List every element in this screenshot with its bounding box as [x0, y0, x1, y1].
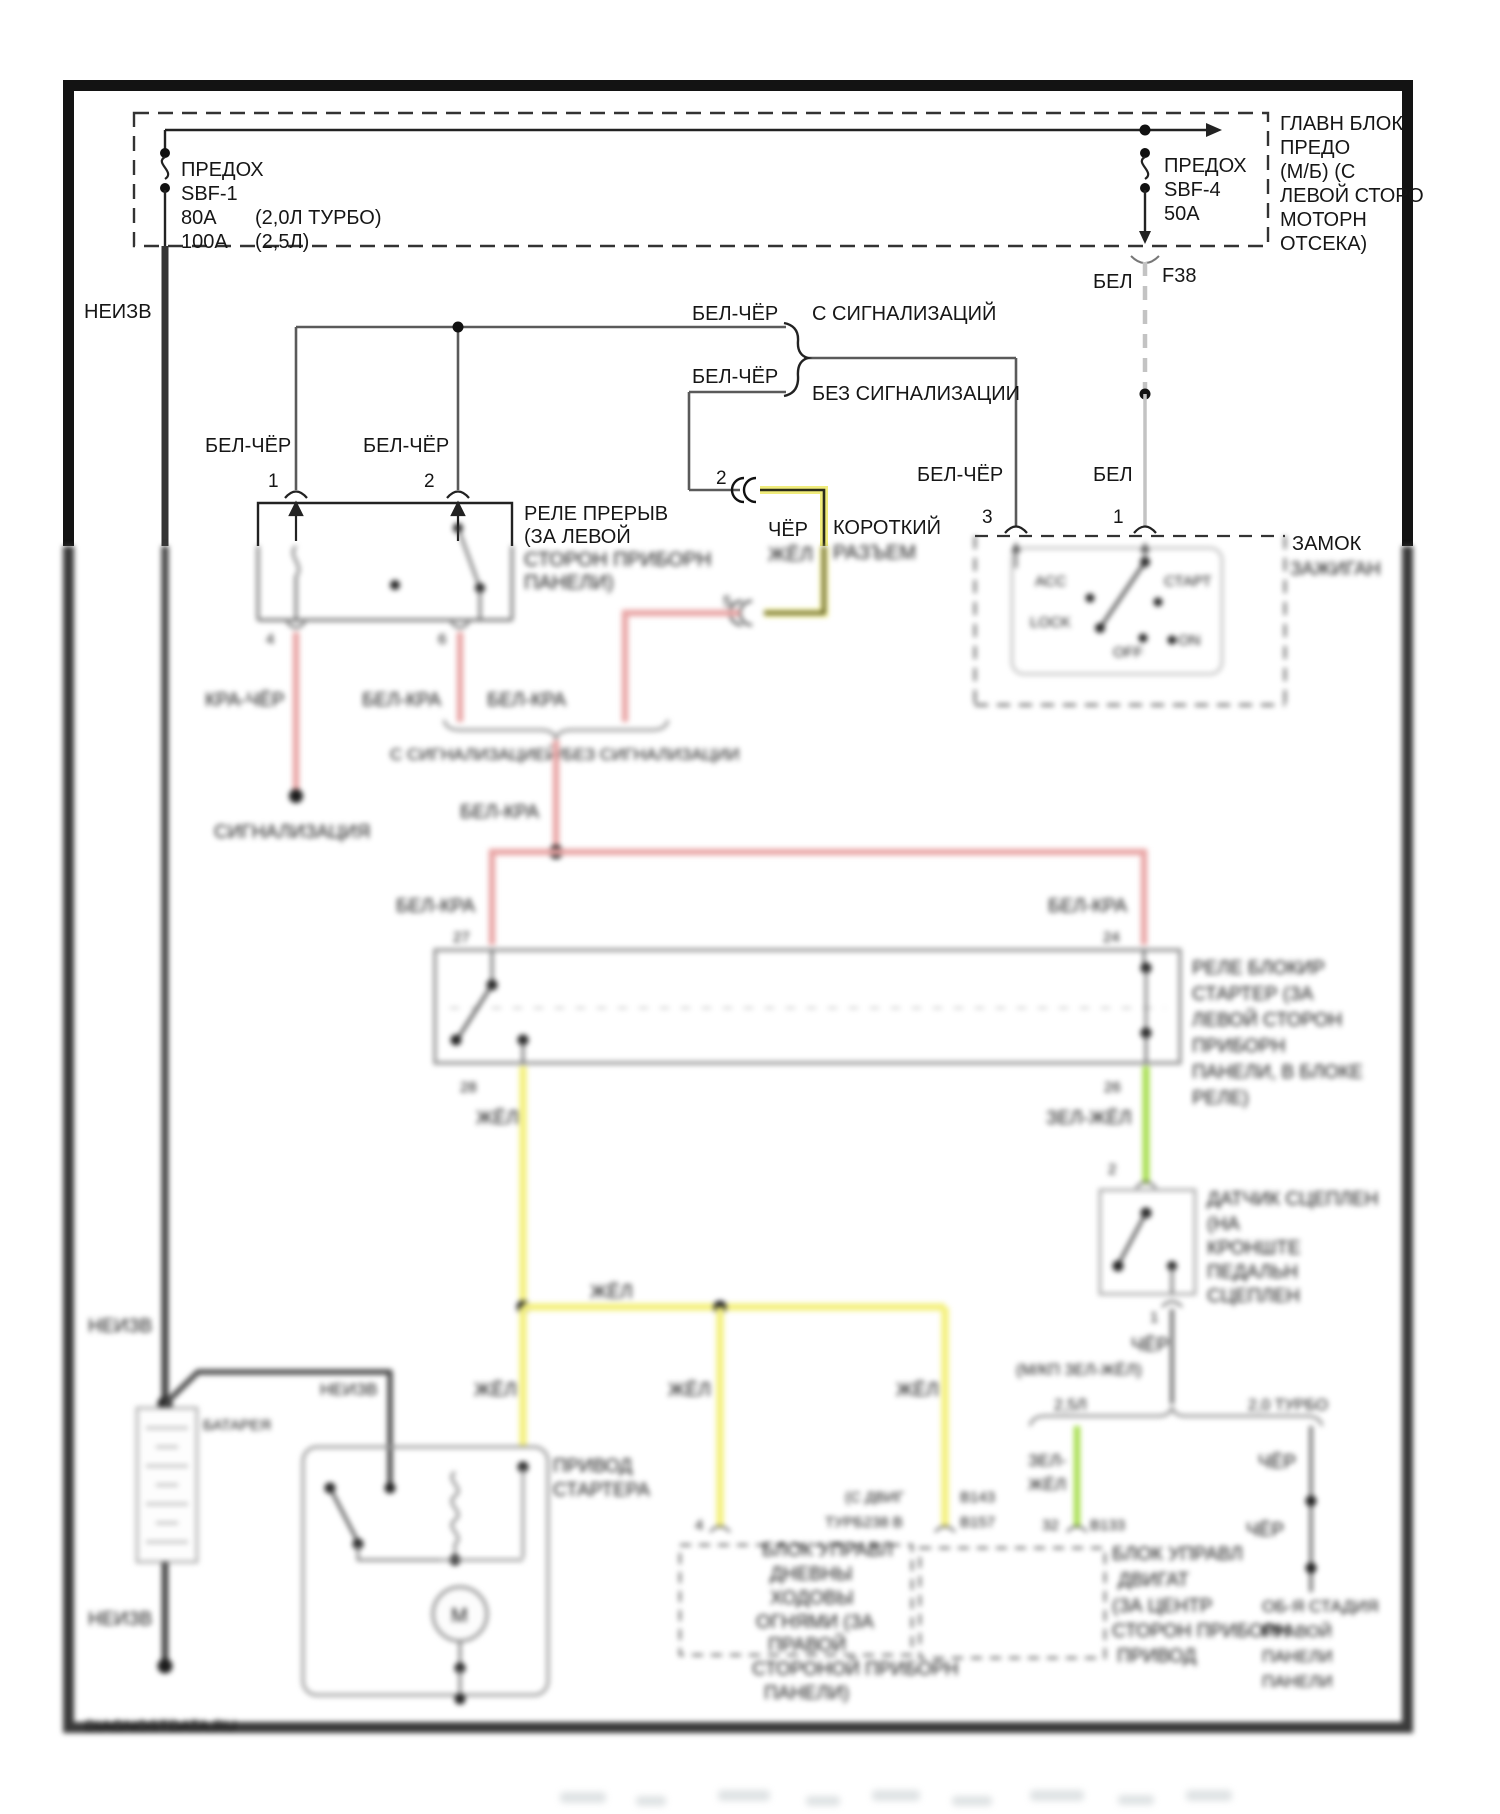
pin28-label: 28	[460, 1079, 477, 1096]
interrupt-relay-pin-arrows	[290, 503, 464, 541]
wire-label-bel-b: БЕЛ	[1093, 464, 1133, 486]
wire-label-neizv-top: НЕИЗВ	[84, 301, 152, 323]
page-border-bottom	[63, 1722, 1413, 1733]
pin5-label: 5	[723, 593, 731, 610]
ignition-pin1-label: 1	[1113, 507, 1124, 528]
wire-label-neizv-2: НЕИЗВ	[88, 1316, 152, 1337]
wire-label-bel-kra-c: БЕЛ-КРА	[460, 802, 539, 823]
code-b133-label: В133	[1090, 1517, 1125, 1534]
drl-module-title: БЛОК УПРАВЛ ДНЕВНЫ ХОДОВЫ ОГНЯМИ (ЗА ПРА…	[752, 1540, 959, 1704]
clutch-pin-arc	[1136, 1182, 1156, 1188]
wire-label-zhel-1: ЖЁЛ	[476, 1108, 519, 1129]
clutch-out-arc	[1162, 1302, 1182, 1308]
clutch-pin2-label: 2	[1108, 1161, 1116, 1178]
wire-label-zhel-4: ЖЁЛ	[668, 1380, 711, 1401]
pin4-label: 4	[266, 631, 274, 648]
variant-25-label: 2,5Л	[1054, 1397, 1087, 1414]
wire-label-zhel-3: ЖЁЛ	[474, 1380, 517, 1401]
wire-label-kra-cher: КРА-ЧЁР	[205, 690, 285, 711]
wire-label-zhel-2: ЖЁЛ	[590, 1282, 633, 1303]
short-connector-pin2-label: 2	[716, 468, 727, 489]
ignition-pin3-label: 3	[982, 507, 993, 528]
fuse-sbf1-symbol	[160, 130, 170, 246]
wire-label-zhel-sc: ЖЁЛ	[768, 544, 813, 566]
sharp-layer: ПРЕДОХ SBF-1 80А (2,0Л ТУРБО) 100А (2,5Л…	[63, 80, 1424, 555]
wire-label-bel: БЕЛ	[1093, 271, 1133, 293]
ignition-pos-start: СТАРТ	[1164, 573, 1212, 590]
wire-label-bel-kra-b: БЕЛ-КРА	[487, 690, 566, 711]
clutch-sensor-internals	[1113, 1208, 1178, 1295]
pin4b-label: 4	[695, 1517, 703, 1534]
fuse2-title: ПРЕДОХ	[1164, 155, 1247, 177]
wire-label-zel-zhel: ЗЕЛ-ЖЁЛ	[1046, 1108, 1132, 1129]
bus-arrowhead-icon	[1206, 123, 1222, 137]
relay-pin2-label: 2	[424, 471, 435, 492]
ignition-pos-on: ON	[1178, 632, 1201, 649]
pin26-label: 26	[1104, 1079, 1121, 1096]
svg-text:КРОНШТЕ: КРОНШТЕ	[1207, 1238, 1301, 1259]
wire-label-bel-cher-d: БЕЛ-ЧЁР	[363, 435, 449, 457]
pin6-label: 6	[438, 631, 446, 648]
fuse1-rating1: 80А	[181, 207, 217, 229]
fuse2-arrowhead-icon	[1139, 231, 1151, 244]
wire-label-zhel-g: ЖЁЛ	[1028, 1475, 1066, 1494]
wire-label-neizv-3: НЕИЗВ	[320, 1380, 377, 1399]
wire-label-bel-kra-d: БЕЛ-КРА	[396, 896, 475, 917]
ignition-pos-off: OFF	[1113, 644, 1143, 661]
svg-text:ПРАВОЙ: ПРАВОЙ	[1262, 1622, 1332, 1641]
starting-system-schematic: ПРЕДОХ SBF-1 80А (2,0Л ТУРБО) 100А (2,5Л…	[0, 0, 1500, 1814]
svg-text:ПАНЕЛИ): ПАНЕЛИ)	[764, 1683, 849, 1704]
branch-with-alarm-label: С СИГНАЛИЗАЦИЙ	[812, 301, 996, 325]
ignition-title-2: ЗАЖИГАН	[1290, 559, 1381, 580]
f38-label: F38	[1162, 265, 1196, 287]
svg-text:ПАНЕЛИ: ПАНЕЛИ	[1262, 1647, 1333, 1666]
svg-text:ОГНЯМИ (ЗА: ОГНЯМИ (ЗА	[756, 1612, 874, 1633]
wire-label-bel-cher-a: БЕЛ-ЧЁР	[692, 303, 778, 325]
black-wire-dot-1	[1306, 1496, 1317, 1507]
bottom-faint-caption	[560, 1790, 1232, 1806]
white-red-split-wire	[492, 852, 1144, 945]
fuse1-variant1: (2,0Л ТУРБО)	[255, 207, 382, 229]
wire-label-zhel-5: ЖЁЛ	[896, 1380, 939, 1401]
svg-text:(НА: (НА	[1207, 1214, 1240, 1235]
code-turb-label: ТУРБ238 В	[825, 1514, 903, 1531]
page-border-top	[63, 80, 1413, 91]
starter-box	[303, 1447, 548, 1695]
starter-title-1: ПРИВОД	[553, 1456, 632, 1477]
interrupt-relay-title-1: РЕЛЕ ПРЕРЫВ	[524, 503, 668, 525]
svg-text:ПАНЕЛИ: ПАНЕЛИ	[1262, 1672, 1333, 1691]
code-b157-label: В157	[960, 1514, 995, 1531]
fuse1-title: ПРЕДОХ	[181, 159, 264, 181]
branch-without-alarm-label: БЕЗ СИГНАЛИЗАЦИИ	[812, 383, 1020, 405]
svg-text:ЛЕВОЙ СТОРОН: ЛЕВОЙ СТОРОН	[1192, 1009, 1342, 1031]
wire-label-neizv-4: НЕИЗВ	[88, 1609, 152, 1630]
wire-label-cher-1: ЧЁР	[1131, 1335, 1169, 1356]
mkp-note-label: (М/КП ЗЕЛ-ЖЁЛ)	[1016, 1361, 1142, 1379]
wire-label-cher-2: ЧЁР	[1258, 1452, 1296, 1473]
ground-end-dot	[158, 1659, 173, 1674]
alarm-system-label: СИГНАЛИЗАЦИЯ	[214, 822, 370, 843]
pin32-label: 32	[1042, 1517, 1059, 1534]
start-relay-title: РЕЛЕ БЛОКИР СТАРТЕР (ЗА ЛЕВОЙ СТОРОН ПРИ…	[1192, 958, 1363, 1109]
svg-text:ОТСЕКА): ОТСЕКА)	[1280, 233, 1367, 255]
page-border-left-upper	[63, 80, 74, 546]
green-pin-arc	[1067, 1527, 1087, 1533]
fuse2-id: SBF-4	[1164, 179, 1221, 201]
svg-text:БЛОК УПРАВЛ: БЛОК УПРАВЛ	[1112, 1544, 1243, 1565]
code-b143-label: В143	[960, 1489, 995, 1506]
svg-text:ЛЕВОЙ СТОРО: ЛЕВОЙ СТОРО	[1280, 183, 1424, 207]
svg-text:БЛОК УПРАВЛ: БЛОК УПРАВЛ	[762, 1540, 893, 1561]
svg-text:(М/Б) (С: (М/Б) (С	[1280, 161, 1355, 183]
wire-label-bel-kra-e: БЕЛ-КРА	[1048, 896, 1127, 917]
fuse2-rating: 50А	[1164, 203, 1200, 225]
wiring-diagram-page: ПРЕДОХ SBF-1 80А (2,0Л ТУРБО) 100А (2,5Л…	[0, 0, 1500, 1814]
svg-text:ГЛАВН БЛОК: ГЛАВН БЛОК	[1280, 113, 1403, 135]
start-relay-box	[435, 950, 1180, 1063]
svg-text:СТОРОНОЙ ПРИБОРН: СТОРОНОЙ ПРИБОРН	[752, 1658, 959, 1680]
starter-title-2: СТАРТЕРА	[553, 1480, 650, 1501]
svg-text:ДВИГАТ: ДВИГАТ	[1118, 1570, 1189, 1591]
black-wire-dot-2	[1306, 1563, 1317, 1574]
short-connector-label-1: КОРОТКИЙ	[833, 515, 941, 539]
interrupt-relay-title-3: СТОРОН ПРИБОРН	[524, 549, 711, 571]
svg-text:РЕЛЕ): РЕЛЕ)	[1192, 1088, 1249, 1109]
relay-output-pin-arcs	[287, 622, 469, 628]
svg-text:ДАТЧИК СЦЕПЛЕН: ДАТЧИК СЦЕПЛЕН	[1207, 1189, 1378, 1210]
watermark-label: DIAGNOSTDATA.RU	[85, 1718, 236, 1735]
white-wire-f38	[1140, 262, 1151, 526]
pin24-label: 24	[1103, 929, 1120, 946]
yellow-pin-arc-2	[935, 1527, 955, 1533]
battery-symbol	[137, 1408, 197, 1562]
f38-connector-icon	[1131, 256, 1159, 263]
white-red-wire-b	[625, 613, 740, 722]
merge-note-label: С СИГНАЛИЗАЦИЕЙ/БЕЗ СИГНАЛИЗАЦИИ	[390, 745, 740, 764]
fuse1-variant2: (2,5Л)	[255, 231, 309, 253]
interrupt-relay-title-2: (ЗА ЛЕВОЙ	[524, 524, 631, 548]
battery-label: БАТАРЕЯ	[203, 1417, 271, 1434]
wire-label-zel: ЗЕЛ-	[1028, 1451, 1066, 1470]
code-sdvig-label: (С ДВИГ	[845, 1489, 904, 1506]
variant-20t-label: 2,0 ТУРБО	[1248, 1397, 1328, 1414]
clutch-sensor-title: ДАТЧИК СЦЕПЛЕН (НА КРОНШТЕ ПЕДАЛЬН СЦЕПЛ…	[1207, 1189, 1378, 1307]
starter-internals	[325, 1462, 529, 1705]
page-border-right-upper	[1402, 80, 1413, 546]
svg-text:ПРИВОД: ПРИВОД	[1117, 1646, 1196, 1667]
blurred-layer: СТОРОН ПРИБОРН ПАНЕЛИ) 4 6 КРА-ЧЁР СИГНА…	[63, 523, 1413, 1735]
svg-text:ДНЕВНЫ: ДНЕВНЫ	[770, 1564, 852, 1585]
engine-ecu-title: БЛОК УПРАВЛ ДВИГАТ (ЗА ЦЕНТР СТОРОН ПРИБ…	[1112, 1544, 1379, 1691]
svg-text:(ЗА ЦЕНТР: (ЗА ЦЕНТР	[1112, 1596, 1212, 1617]
motor-m-label: M	[451, 1605, 468, 1627]
svg-text:ПЕДАЛЬН: ПЕДАЛЬН	[1207, 1262, 1298, 1283]
svg-text:РЕЛЕ БЛОКИР: РЕЛЕ БЛОКИР	[1192, 958, 1325, 979]
clutch-sensor-box	[1100, 1190, 1195, 1294]
svg-text:ПРЕДО: ПРЕДО	[1280, 137, 1350, 159]
ignition-pos-acc: АСС	[1035, 573, 1067, 590]
ignition-title-1: ЗАМОК	[1292, 533, 1362, 555]
power-bus-wire	[165, 123, 1222, 137]
svg-text:ПАНЕЛИ, В БЛОКЕ: ПАНЕЛИ, В БЛОКЕ	[1192, 1062, 1363, 1083]
pin-entry-arcs	[285, 492, 1156, 534]
wire-label-bel-cher-e: БЕЛ-ЧЁР	[917, 464, 1003, 486]
clutch-pin1-label: 1	[1150, 1309, 1158, 1326]
ignition-box-lower	[975, 536, 1285, 705]
fuse1-id: SBF-1	[181, 183, 238, 205]
yellow-pin-arc-1	[710, 1527, 730, 1533]
alarm-option-brace-icon	[784, 323, 808, 396]
svg-text:ПРИБОРН: ПРИБОРН	[1192, 1036, 1285, 1057]
wire-label-bel-cher-c: БЕЛ-ЧЁР	[205, 435, 291, 457]
svg-text:МОТОРН: МОТОРН	[1280, 209, 1367, 231]
merge-bracket-icon	[444, 720, 668, 739]
bel-cher-branch-wires	[296, 322, 1016, 527]
pin27-label: 27	[453, 929, 470, 946]
relay-pin1-label: 1	[268, 471, 279, 492]
alarm-wire-end-dot	[289, 789, 303, 803]
short-connector-label-2: РАЗЪЕМ	[833, 542, 916, 564]
fuse-sbf4-symbol	[1139, 148, 1151, 244]
wire-label-cher: ЧЁР	[768, 519, 808, 541]
engine-ecu-box	[920, 1548, 1105, 1658]
svg-text:ПРАВОЙ: ПРАВОЙ	[768, 1634, 846, 1656]
page-border-right-lower	[1402, 546, 1413, 1732]
ignition-pos-lock: LOCK	[1030, 614, 1071, 631]
svg-text:ХОДОВЫ: ХОДОВЫ	[770, 1588, 854, 1609]
fuse1-rating2: 100А	[181, 231, 228, 253]
svg-text:СТАРТЕР (ЗА: СТАРТЕР (ЗА	[1192, 984, 1314, 1005]
wire-label-cher-3: ЧЁР	[1246, 1520, 1284, 1541]
wire-label-bel-cher-b: БЕЛ-ЧЁР	[692, 366, 778, 388]
wire-label-bel-kra-a: БЕЛ-КРА	[362, 690, 441, 711]
page-border-left-lower	[63, 546, 74, 1732]
interrupt-relay-title-4: ПАНЕЛИ)	[524, 572, 614, 594]
svg-text:СЦЕПЛЕН: СЦЕПЛЕН	[1207, 1286, 1300, 1307]
svg-text:ОБ-Я СТАДИЯ: ОБ-Я СТАДИЯ	[1262, 1597, 1379, 1616]
